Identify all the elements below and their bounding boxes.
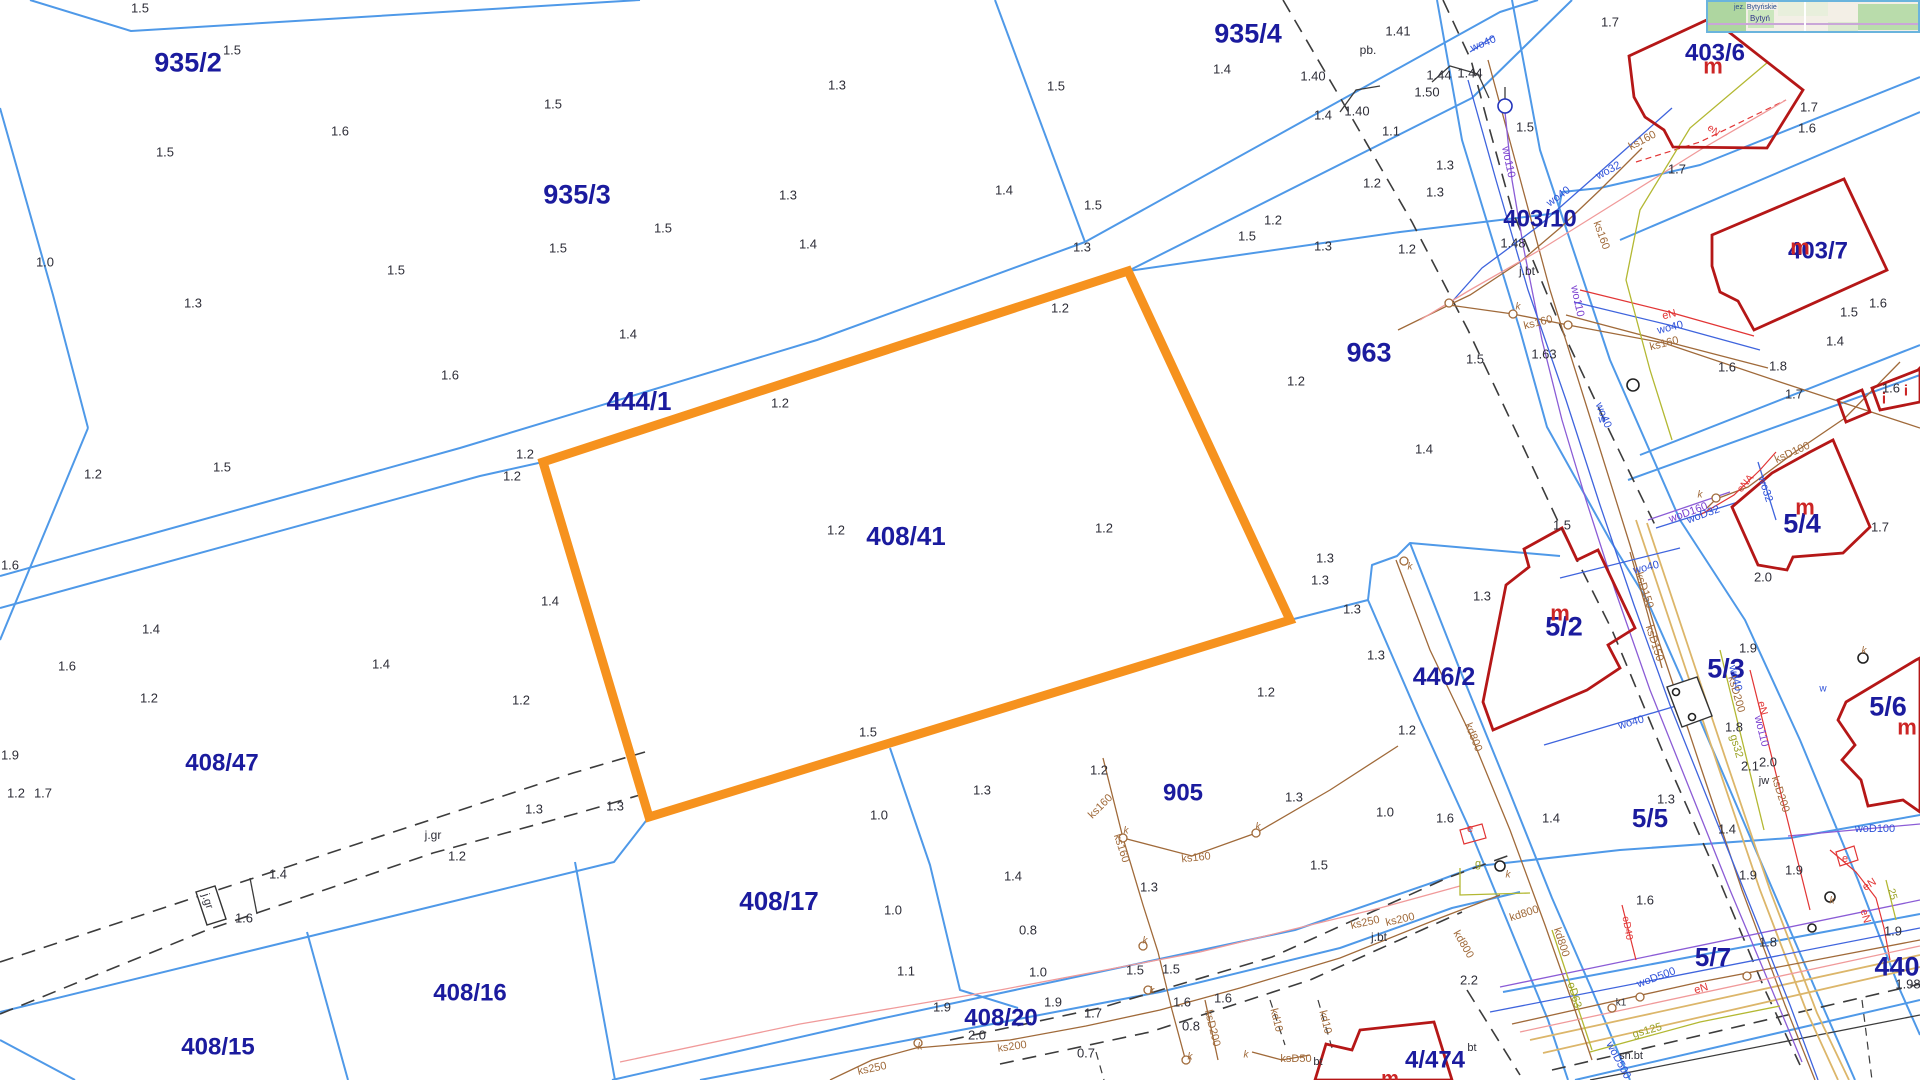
parcel-number-label: 963 [1346, 337, 1391, 367]
elevation-label: 1.5 [1840, 305, 1858, 320]
utility-line-label: gs125 [1631, 1021, 1663, 1041]
parcel-number-label: 408/47 [185, 749, 258, 776]
manhole-label: k [1244, 1050, 1250, 1061]
elevation-label: 1.44 [1457, 66, 1482, 81]
utility-line-label: wo110 [1751, 713, 1771, 748]
elevation-label: 1.5 [387, 263, 405, 278]
map-line-bl [995, 0, 1085, 242]
parcel-number-label: 408/15 [181, 1033, 254, 1060]
utility-line-label: kd10 [1316, 1009, 1333, 1035]
elevation-label: 1.6 [1214, 991, 1232, 1006]
elevation-label: 1.3 [973, 783, 991, 798]
elevation-label: 1.0 [36, 255, 54, 270]
utility-line-label: ks160 [1649, 334, 1680, 353]
elevation-label: 1.1 [897, 964, 915, 979]
utility-line-label: oD40 [1620, 915, 1635, 941]
utility-line-label: bt [1467, 1042, 1476, 1054]
elevation-label: 1.4 [1314, 108, 1332, 123]
elevation-label: 1.4 [1213, 62, 1231, 77]
utility-line-label: wo40 [1468, 33, 1498, 54]
utility-line-label: kd800 [1451, 928, 1476, 960]
elevation-label: 1.6 [235, 911, 253, 926]
elevation-label: 1.3 [1285, 790, 1303, 805]
map-line-bl [0, 462, 543, 608]
utility-line-label: kd10 [1267, 1007, 1284, 1033]
cadastral-map[interactable]: 935/2935/3935/4444/1408/41963403/6403/10… [0, 0, 1920, 1080]
elevation-label: 1.5 [1126, 963, 1144, 978]
elevation-label: 1.3 [1473, 589, 1491, 604]
parcel-number-label: 408/17 [739, 886, 819, 916]
elevation-label: 1.7 [1668, 162, 1686, 177]
utility-line-label: ksD50 [1280, 1053, 1311, 1065]
survey-point-symbol [1495, 861, 1505, 871]
elevation-label: 1.2 [1090, 763, 1108, 778]
utility-line-label: e [1467, 823, 1473, 835]
elevation-label: 1.4 [1004, 869, 1022, 884]
elevation-label: 1.4 [372, 657, 390, 672]
utility-line-label: kd800 [1551, 926, 1572, 958]
elevation-label: 1.2 [1051, 301, 1069, 316]
map-line-pk [1420, 100, 1786, 320]
elevation-label: 1.3 [1426, 185, 1444, 200]
utility-line-label: kd800 [1462, 721, 1484, 753]
utility-line-label: ks160 [1591, 219, 1612, 251]
elevation-label: 1.3 [1343, 602, 1361, 617]
survey-point-symbol [1673, 689, 1680, 696]
map-line-dash [0, 792, 650, 1014]
survey-point-symbol [1445, 299, 1453, 307]
elevation-label: 1.5 [213, 460, 231, 475]
elevation-label: 1.4 [619, 327, 637, 342]
elevation-label: 1.3 [1073, 240, 1091, 255]
elevation-label: 1.5 [1084, 198, 1102, 213]
elevation-label: 1.6 [58, 659, 76, 674]
elevation-label: 1.3 [779, 188, 797, 203]
elevation-label: 2.0 [1759, 755, 1777, 770]
elevation-label: 1.5 [1310, 858, 1328, 873]
utility-line-label: pb. [1360, 43, 1377, 57]
parcel-number-label: 446/2 [1413, 663, 1476, 691]
elevation-label: 1.6 [1636, 893, 1654, 908]
minimap-place-label: Bytyń [1750, 14, 1770, 23]
elevation-label: 1.3 [1314, 239, 1332, 254]
map-line-ol [1590, 1006, 1780, 1052]
elevation-label: 1.5 [1466, 352, 1484, 367]
elevation-label: 1.5 [859, 725, 877, 740]
building-use-label: m [1795, 495, 1815, 520]
elevation-label: 1.4 [269, 867, 287, 882]
survey-point-symbol [1808, 924, 1816, 932]
elevation-label: 1.8 [1725, 720, 1743, 735]
elevation-label: 1.2 [1095, 521, 1113, 536]
survey-point-symbol [1636, 993, 1644, 1001]
elevation-label: 1.2 [7, 786, 25, 801]
elevation-label: 2.0 [968, 1028, 986, 1043]
elevation-label: 1.2 [1257, 685, 1275, 700]
manhole-label: k [1516, 302, 1522, 313]
elevation-label: 2.1 [1741, 759, 1759, 774]
elevation-label: 2.0 [1754, 570, 1772, 585]
parcel-number-label: 5/7 [1695, 942, 1731, 972]
utility-line-label: wo40 [1655, 319, 1684, 337]
utility-line-label: kd800 [1508, 903, 1540, 924]
elevation-label: 1.3 [1311, 573, 1329, 588]
elevation-label: 1.5 [1047, 79, 1065, 94]
survey-point-symbol [1564, 321, 1572, 329]
elevation-label: 1.0 [1029, 965, 1047, 980]
elevation-label: 1.98 [1895, 977, 1920, 992]
utility-line-label: wo32 [1755, 474, 1775, 504]
map-line-dashf [1096, 1052, 1104, 1080]
elevation-label: 1.9 [1785, 863, 1803, 878]
elevation-label: 1.5 [549, 241, 567, 256]
map-line-blk [250, 878, 257, 914]
elevation-label: 1.3 [828, 78, 846, 93]
elevation-label: 1.6 [441, 368, 459, 383]
elevation-label: 1.9 [1884, 924, 1902, 939]
elevation-label: 1.5 [156, 145, 174, 160]
building-use-label: m [1550, 601, 1570, 626]
parcel-number-label: 403/10 [1503, 205, 1576, 232]
elevation-label: 1.7 [34, 786, 52, 801]
map-line-dash [0, 752, 645, 962]
elevation-label: 1.7 [1084, 1006, 1102, 1021]
parcel-number-label: 935/3 [543, 179, 611, 209]
elevation-label: 1.5 [544, 97, 562, 112]
elevation-label: 1.4 [142, 622, 160, 637]
utility-line-label: ks250 [857, 1060, 888, 1078]
elevation-label: 1.6 [1, 558, 19, 573]
parcel-number-label: 408/16 [433, 979, 506, 1006]
elevation-label: 1.6 [1798, 121, 1816, 136]
elevation-label: 1.40 [1300, 69, 1325, 84]
elevation-label: 1.5 [223, 43, 241, 58]
utility-line-label: j.bt [1370, 930, 1388, 944]
elevation-label: 1.2 [827, 523, 845, 538]
elevation-label: 1.50 [1414, 85, 1439, 100]
overview-minimap[interactable]: jez. BytyńskieBytyń [1706, 0, 1920, 33]
elevation-label: 1.7 [1785, 387, 1803, 402]
utility-line-label: 25 [1885, 887, 1899, 901]
elevation-label: 2.2 [1460, 973, 1478, 988]
utility-line-label: wo110 [1499, 144, 1518, 178]
map-line-bl [0, 1040, 75, 1080]
elevation-label: 1.2 [1287, 374, 1305, 389]
elevation-label: 1.0 [884, 903, 902, 918]
elevation-label: 1.9 [1, 748, 19, 763]
parcel-number-label: 5/5 [1632, 803, 1668, 833]
elevation-label: 1.4 [1415, 442, 1433, 457]
elevation-label: 1.41 [1385, 24, 1410, 39]
utility-line-label: wo32 [1593, 159, 1623, 182]
map-line-bl [0, 428, 88, 640]
elevation-label: 1.2 [512, 693, 530, 708]
manhole-label: k [1506, 870, 1512, 881]
elevation-label: 1.0 [870, 808, 888, 823]
map-line-bl [1085, 0, 1538, 242]
elevation-label: 1.3 [1316, 551, 1334, 566]
elevation-label: 1.2 [1398, 723, 1416, 738]
elevation-label: 1.3 [1436, 158, 1454, 173]
manhole-label: k [1143, 936, 1149, 947]
utility-line-label: ks160 [1181, 850, 1211, 865]
elevation-label: 1.9 [1739, 641, 1757, 656]
elevation-label: 1.2 [1264, 213, 1282, 228]
elevation-label: 1.63 [1531, 347, 1556, 362]
map-line-dash [1467, 990, 1520, 1075]
map-line-bl [30, 0, 640, 31]
map-line-bl [1437, 0, 1855, 1080]
map-line-bl [1628, 375, 1920, 480]
elevation-label: 1.0 [1376, 805, 1394, 820]
parcel-number-label: 408/41 [866, 521, 946, 551]
utility-line-label: ksD200 [1202, 1009, 1223, 1048]
elevation-label: 1.2 [448, 849, 466, 864]
elevation-label: 1.7 [1871, 520, 1889, 535]
map-line-bl [575, 862, 615, 1080]
elevation-label: 1.9 [933, 1000, 951, 1015]
elevation-label: 1.3 [1140, 880, 1158, 895]
survey-point-symbol [1498, 99, 1512, 113]
elevation-label: 1.4 [1542, 811, 1560, 826]
elevation-label: 1.40 [1344, 104, 1369, 119]
manhole-label: k [1188, 1052, 1194, 1063]
elevation-label: 1.7 [1800, 100, 1818, 115]
building-use-label: m [1381, 1068, 1399, 1080]
elevation-label: 1.4 [995, 183, 1013, 198]
elevation-label: 1.6 [1173, 995, 1191, 1010]
map-line-bl [307, 932, 348, 1080]
minimap-terrain-patch [1858, 4, 1918, 30]
survey-point-symbol [1689, 714, 1696, 721]
building-use-label: i [1882, 390, 1886, 407]
elevation-label: 1.3 [184, 296, 202, 311]
utility-line-label: sn.bt [1619, 1050, 1643, 1062]
manhole-label: k [1124, 826, 1130, 837]
parcel-number-label: 935/4 [1214, 18, 1282, 48]
building-use-label: i [1904, 382, 1908, 399]
utility-line-label: w [1818, 684, 1827, 695]
elevation-label: 1.4 [1826, 334, 1844, 349]
parcel-number-label: 905 [1163, 779, 1203, 806]
utility-line-label: ks160 [1111, 832, 1131, 864]
survey-point-symbol [1712, 494, 1720, 502]
map-line-dash [1283, 0, 1800, 1065]
utility-line-label: wo110 [1568, 283, 1587, 317]
elevation-label: 1.8 [1769, 359, 1787, 374]
elevation-label: 1.3 [525, 802, 543, 817]
utility-line-label: ksD150 [1633, 571, 1656, 610]
elevation-label: 1.6 [1718, 360, 1736, 375]
utility-line-label: eN [1755, 700, 1770, 717]
elevation-label: 0.7 [1077, 1046, 1095, 1061]
building-use-label: m [1790, 235, 1810, 260]
elevation-label: 1.2 [1398, 242, 1416, 257]
elevation-label: 1.7 [1601, 15, 1619, 30]
utility-line-label: woD500 [1634, 965, 1677, 990]
elevation-label: 1.6 [331, 124, 349, 139]
parcel-number-label: 4/474 [1405, 1046, 1466, 1073]
survey-point-symbol [1743, 972, 1751, 980]
elevation-label: 1.5 [1516, 120, 1534, 135]
elevation-label: 1.8 [1759, 935, 1777, 950]
utility-line-label: jw [1758, 775, 1769, 787]
minimap-terrain-patch [1708, 23, 1920, 25]
utility-line-label: ksD200 [1769, 775, 1792, 814]
elevation-label: 1.2 [516, 447, 534, 462]
utility-line-label: e [1842, 853, 1848, 865]
utility-line-label: w [1597, 415, 1606, 426]
map-line-bl [1512, 0, 1920, 1035]
utility-line-label: wo40 [1616, 713, 1646, 732]
utility-line-label: k1 [1616, 998, 1627, 1009]
utility-line-label: eN [1857, 908, 1872, 925]
elevation-label: 1.1 [1382, 124, 1400, 139]
utility-line-label: ks160 [1627, 129, 1659, 153]
map-line-dash [1000, 912, 1462, 1064]
utility-line-label: ksD150 [1643, 624, 1666, 663]
cadastral-map-canvas[interactable]: 935/2935/3935/4444/1408/41963403/6403/10… [0, 0, 1920, 1080]
elevation-label: 1.5 [1553, 518, 1571, 533]
elevation-label: 1.5 [131, 1, 149, 16]
elevation-label: 1.6 [1869, 296, 1887, 311]
elevation-label: 1.48 [1500, 236, 1525, 251]
map-line-ut [1560, 548, 1680, 578]
elevation-label: 1.2 [503, 469, 521, 484]
elevation-label: 1.44 [1426, 68, 1451, 83]
elevation-label: 0.8 [1182, 1019, 1200, 1034]
elevation-label: 1.3 [1657, 792, 1675, 807]
minimap-terrain-patch [1778, 2, 1828, 16]
manhole-label: k [1698, 490, 1704, 501]
building-use-label: m [1703, 54, 1723, 79]
utility-line-label: eN [1705, 123, 1722, 140]
elevation-label: 1.4 [799, 237, 817, 252]
elevation-label: 1.3 [606, 799, 624, 814]
building-use-label: m [1897, 715, 1917, 740]
parcel-number-label: 444/1 [606, 386, 671, 416]
utility-line-label: oD63 [1565, 981, 1584, 1010]
elevation-label: 1.9 [1739, 868, 1757, 883]
utility-line-label: woD100 [1854, 823, 1895, 835]
survey-point-symbol [1627, 379, 1639, 391]
map-line-pu [1505, 112, 1802, 1062]
parcel-number-label: 935/2 [154, 47, 222, 77]
utility-line-label: j.gr [424, 828, 442, 842]
elevation-label: 1.3 [1367, 648, 1385, 663]
elevation-label: 1.2 [771, 396, 789, 411]
utility-line-label: eN [1693, 981, 1710, 996]
minimap-place-label: jez. Bytyńskie [1734, 4, 1777, 11]
utility-line-label: j.bt [1518, 264, 1536, 278]
elevation-label: 0.8 [1019, 923, 1037, 938]
elevation-label: 1.6 [1436, 811, 1454, 826]
utility-line-label: bt [1313, 1056, 1322, 1068]
map-line-bl [0, 817, 649, 1012]
utility-line-label: ks160 [1086, 792, 1115, 821]
utility-line-label: g [1475, 858, 1481, 870]
elevation-label: 1.9 [1044, 995, 1062, 1010]
minimap-terrain-patch [1804, 2, 1806, 33]
elevation-label: 1.4 [541, 594, 559, 609]
manhole-label: k [1408, 562, 1414, 573]
elevation-label: 1.2 [1363, 176, 1381, 191]
elevation-label: 1.2 [84, 467, 102, 482]
elevation-label: 1.5 [1162, 962, 1180, 977]
elevation-label: 1.5 [654, 221, 672, 236]
utility-line-label: gs32 [1727, 733, 1745, 759]
elevation-label: 1.2 [140, 691, 158, 706]
elevation-label: 1.5 [1238, 229, 1256, 244]
map-line-ut [1544, 706, 1676, 745]
elevation-label: 1.4 [1718, 822, 1736, 837]
